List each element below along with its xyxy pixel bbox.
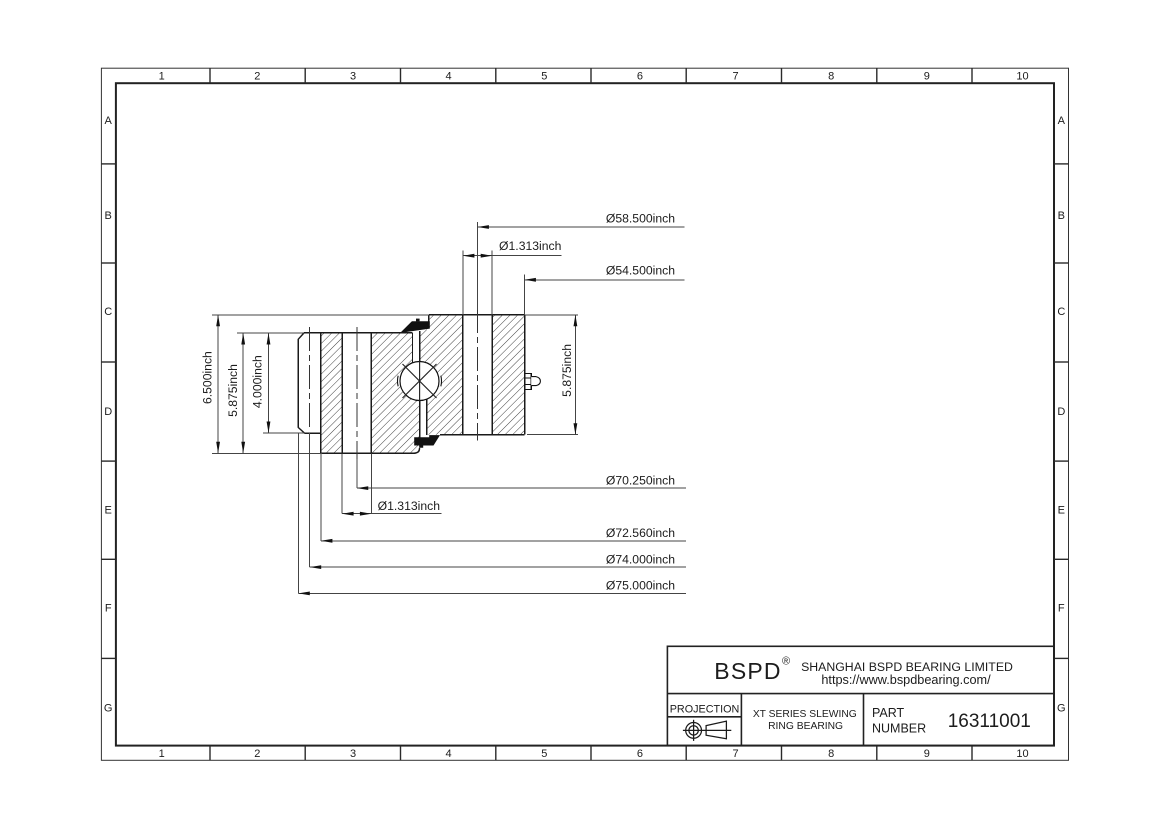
svg-text:B: B xyxy=(105,210,112,222)
svg-text:SHANGHAI BSPD BEARING LIMITED: SHANGHAI BSPD BEARING LIMITED xyxy=(801,660,1013,674)
svg-text:C: C xyxy=(104,306,112,318)
svg-text:6: 6 xyxy=(637,71,643,83)
svg-text:10: 10 xyxy=(1016,71,1028,83)
svg-text:Ø1.313inch: Ø1.313inch xyxy=(499,239,561,253)
svg-text:F: F xyxy=(1058,603,1065,615)
svg-text:6: 6 xyxy=(637,748,643,760)
svg-text:A: A xyxy=(1058,115,1066,127)
svg-text:B: B xyxy=(1058,210,1065,222)
svg-text:C: C xyxy=(1057,306,1065,318)
svg-text:2: 2 xyxy=(254,748,260,760)
svg-text:8: 8 xyxy=(828,71,834,83)
svg-text:Ø74.000inch: Ø74.000inch xyxy=(606,552,675,566)
svg-text:1: 1 xyxy=(159,748,165,760)
svg-text:2: 2 xyxy=(254,71,260,83)
svg-text:4: 4 xyxy=(446,71,452,83)
svg-text:PART: PART xyxy=(872,706,905,720)
svg-text:Ø54.500inch: Ø54.500inch xyxy=(606,264,675,278)
svg-text:E: E xyxy=(105,505,112,517)
svg-text:9: 9 xyxy=(924,748,930,760)
svg-text:A: A xyxy=(105,115,113,127)
svg-text:8: 8 xyxy=(828,748,834,760)
svg-text:5: 5 xyxy=(541,748,547,760)
svg-text:®: ® xyxy=(782,656,790,668)
svg-text:16311001: 16311001 xyxy=(948,711,1031,732)
svg-text:NUMBER: NUMBER xyxy=(872,721,926,735)
svg-text:7: 7 xyxy=(732,71,738,83)
svg-text:https://www.bspdbearing.com/: https://www.bspdbearing.com/ xyxy=(821,673,991,687)
svg-text:G: G xyxy=(104,703,113,715)
svg-text:F: F xyxy=(105,603,112,615)
svg-text:E: E xyxy=(1058,505,1065,517)
svg-text:9: 9 xyxy=(924,71,930,83)
svg-text:XT SERIES SLEWING: XT SERIES SLEWING xyxy=(753,709,857,720)
svg-text:5.875inch: 5.875inch xyxy=(226,364,240,417)
svg-text:BSPD: BSPD xyxy=(714,658,781,684)
svg-text:10: 10 xyxy=(1016,748,1028,760)
svg-text:4.000inch: 4.000inch xyxy=(251,355,265,408)
svg-text:Ø70.250inch: Ø70.250inch xyxy=(606,473,675,487)
svg-text:Ø1.313inch: Ø1.313inch xyxy=(378,499,440,513)
svg-text:7: 7 xyxy=(732,748,738,760)
svg-text:RING BEARING: RING BEARING xyxy=(768,721,843,732)
svg-text:3: 3 xyxy=(350,71,356,83)
svg-text:Ø58.500inch: Ø58.500inch xyxy=(606,212,675,226)
svg-text:4: 4 xyxy=(446,748,452,760)
svg-text:3: 3 xyxy=(350,748,356,760)
svg-text:D: D xyxy=(1057,406,1065,418)
svg-text:5: 5 xyxy=(541,71,547,83)
svg-text:6.500inch: 6.500inch xyxy=(201,351,215,404)
svg-text:G: G xyxy=(1057,703,1066,715)
svg-text:Ø72.560inch: Ø72.560inch xyxy=(606,526,675,540)
svg-text:D: D xyxy=(104,406,112,418)
svg-text:5.875inch: 5.875inch xyxy=(560,344,574,397)
svg-text:PROJECTION: PROJECTION xyxy=(670,704,740,716)
svg-text:Ø75.000inch: Ø75.000inch xyxy=(606,579,675,593)
svg-text:1: 1 xyxy=(159,71,165,83)
